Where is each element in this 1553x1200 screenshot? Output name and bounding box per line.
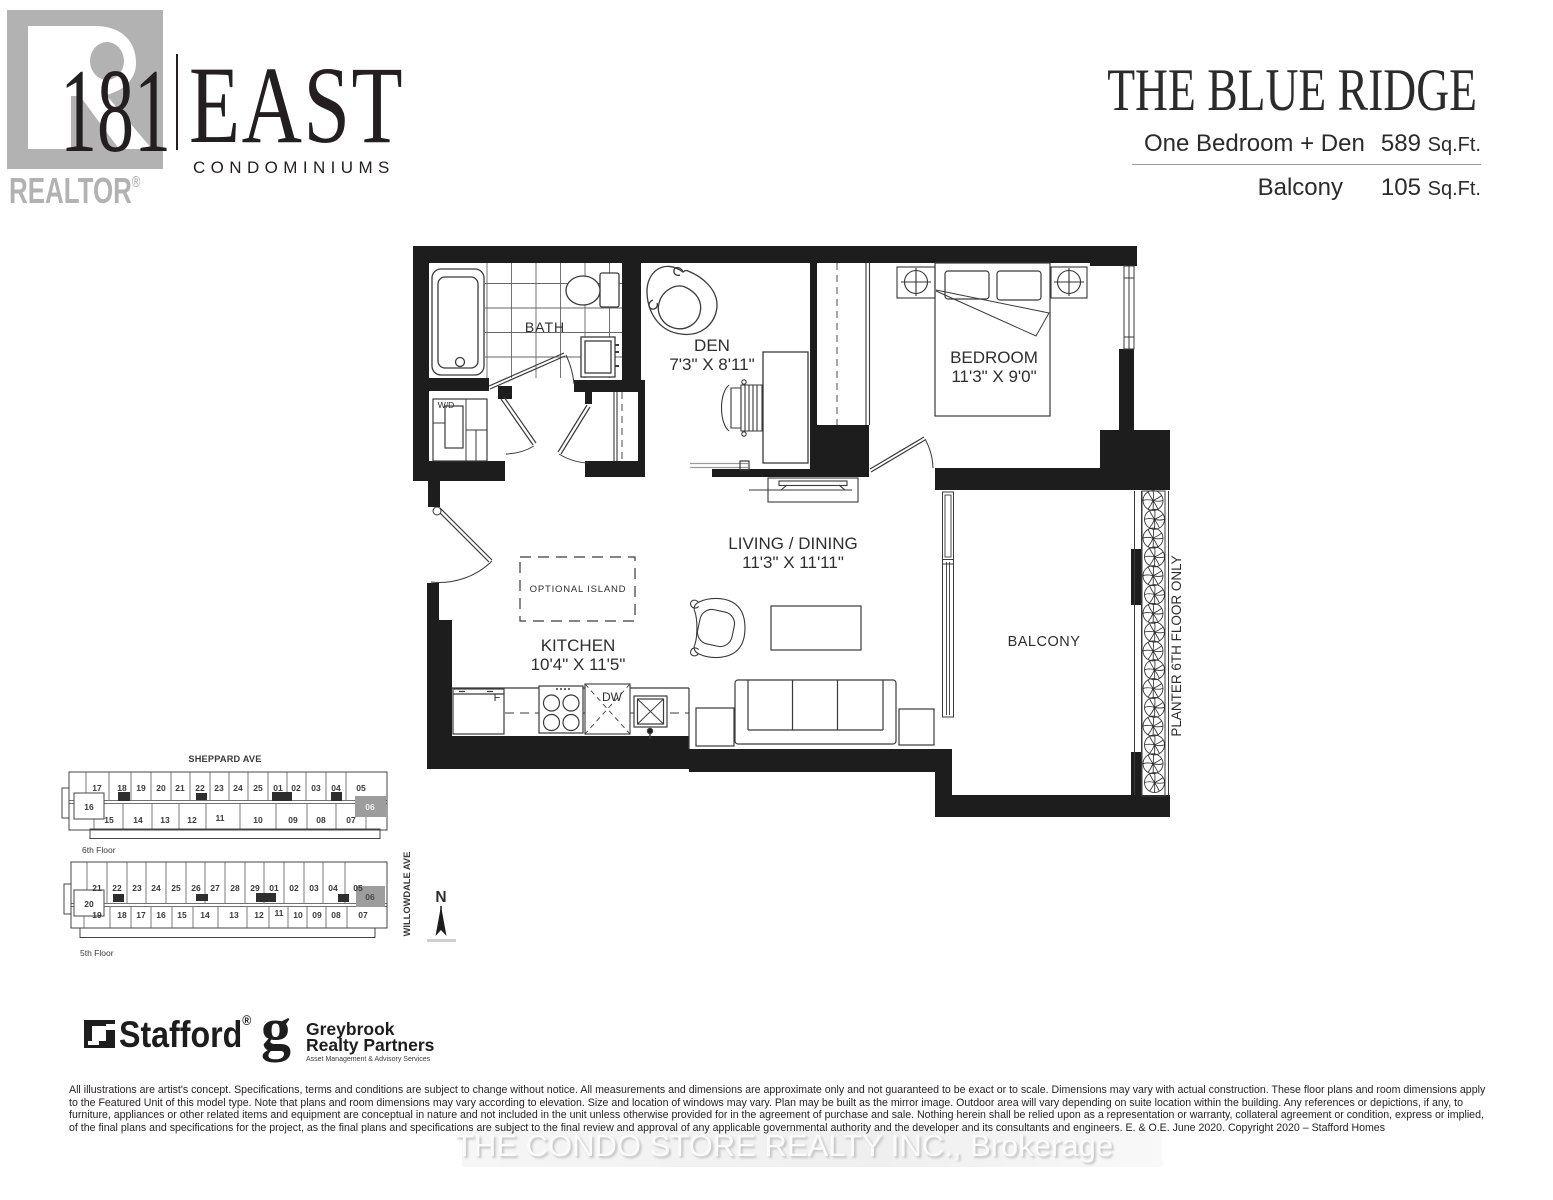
svg-text:09: 09 [312,910,322,920]
svg-text:23: 23 [214,783,224,793]
svg-text:02: 02 [289,883,299,893]
svg-text:14: 14 [133,815,143,825]
svg-text:11: 11 [275,908,284,918]
svg-text:20: 20 [84,899,94,909]
svg-text:17: 17 [92,783,102,793]
svg-text:13: 13 [229,910,239,920]
svg-text:W/D: W/D [438,400,455,410]
svg-text:BALCONY: BALCONY [1008,634,1081,650]
svg-text:11'3" X 9'0": 11'3" X 9'0" [951,367,1036,386]
svg-text:16: 16 [156,910,166,920]
svg-text:20: 20 [156,783,166,793]
svg-text:21: 21 [175,783,185,793]
svg-text:01: 01 [269,883,279,893]
svg-text:06: 06 [365,892,375,902]
svg-text:23: 23 [132,883,142,893]
svg-text:5th Floor: 5th Floor [80,948,114,958]
svg-text:F: F [494,692,501,704]
svg-text:22: 22 [112,883,122,893]
svg-text:19: 19 [92,910,102,920]
svg-text:7'3" X 8'11": 7'3" X 8'11" [669,355,754,374]
svg-text:Realty Partners: Realty Partners [306,1035,435,1055]
svg-text:18: 18 [117,783,127,793]
svg-text:10: 10 [253,815,263,825]
svg-text:25: 25 [171,883,181,893]
svg-text:05: 05 [353,883,363,893]
svg-text:24: 24 [151,883,161,893]
svg-text:08: 08 [316,815,326,825]
svg-text:02: 02 [291,783,301,793]
svg-text:15: 15 [177,910,187,920]
svg-text:25: 25 [253,783,263,793]
svg-text:13: 13 [160,815,170,825]
svg-text:09: 09 [288,815,298,825]
svg-text:05: 05 [356,783,366,793]
svg-text:03: 03 [309,883,319,893]
svg-text:18: 18 [117,910,127,920]
svg-text:26: 26 [191,883,201,893]
svg-text:12: 12 [187,815,197,825]
svg-text:19: 19 [136,783,146,793]
svg-text:6th Floor: 6th Floor [82,845,116,855]
svg-text:PLANTER 6TH FLOOR ONLY: PLANTER 6TH FLOOR ONLY [1169,555,1184,736]
svg-text:21: 21 [92,883,102,893]
svg-text:11'3" X 11'11": 11'3" X 11'11" [742,553,844,572]
svg-text:03: 03 [311,783,321,793]
svg-text:Asset Management & Advisory Se: Asset Management & Advisory Services [306,1056,431,1063]
svg-text:24: 24 [233,783,243,793]
svg-text:27: 27 [210,883,220,893]
svg-text:07: 07 [346,815,356,825]
svg-text:N: N [435,889,446,906]
svg-text:29: 29 [250,883,260,893]
svg-text:BEDROOM: BEDROOM [950,348,1038,367]
svg-text:KITCHEN: KITCHEN [541,636,616,655]
svg-text:16: 16 [84,802,94,812]
svg-text:28: 28 [230,883,240,893]
svg-text:22: 22 [195,783,205,793]
svg-text:BATH: BATH [525,319,565,335]
svg-text:08: 08 [331,910,341,920]
svg-text:10: 10 [293,910,303,920]
svg-text:WILLOWDALE AVE: WILLOWDALE AVE [402,852,412,937]
svg-text:15: 15 [104,815,114,825]
svg-text:DW: DW [602,690,623,704]
svg-text:SHEPPARD AVE: SHEPPARD AVE [188,754,261,764]
svg-text:04: 04 [331,783,341,793]
svg-text:12: 12 [254,910,264,920]
svg-text:10'4" X 11'5": 10'4" X 11'5" [531,655,626,674]
svg-text:17: 17 [136,910,146,920]
svg-text:Stafford®: Stafford® [119,1012,252,1055]
svg-text:DEN: DEN [694,336,730,355]
svg-text:OPTIONAL ISLAND: OPTIONAL ISLAND [530,584,627,595]
svg-text:LIVING / DINING: LIVING / DINING [728,534,857,553]
svg-text:01: 01 [273,783,283,793]
svg-text:07: 07 [358,910,368,920]
svg-text:11: 11 [216,813,225,823]
svg-text:06: 06 [365,802,375,812]
svg-text:14: 14 [200,910,210,920]
svg-text:04: 04 [328,883,338,893]
svg-text:g: g [261,996,291,1062]
